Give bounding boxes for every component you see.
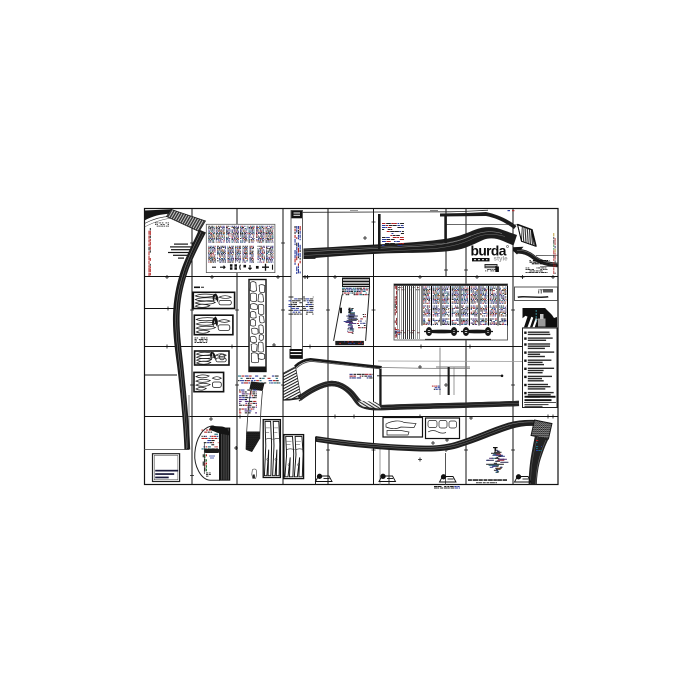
svg-text:iT: iT (538, 290, 544, 296)
svg-text:style: style (494, 256, 509, 263)
